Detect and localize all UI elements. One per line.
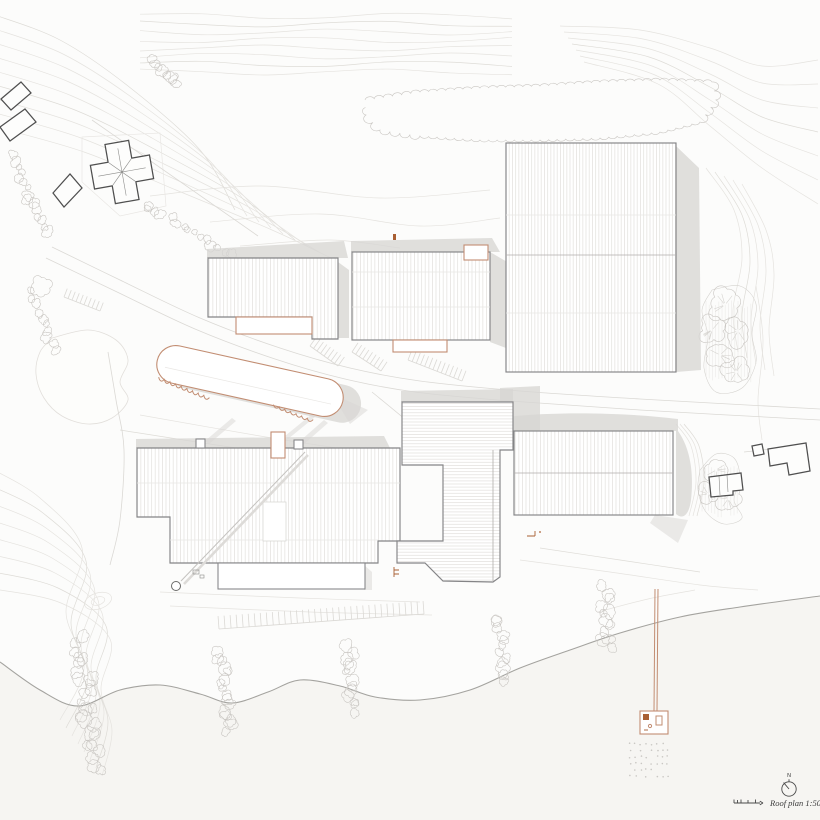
water-post-dot <box>630 750 632 752</box>
parking-c-tick <box>458 369 462 379</box>
parking-a-tick <box>328 350 334 359</box>
parking-south-tick <box>375 605 376 618</box>
parking-c-tick <box>437 361 441 371</box>
water-post-dot <box>645 757 647 759</box>
water-post-dot <box>667 749 669 751</box>
parking-south-tick <box>399 603 400 616</box>
parking-d-tick <box>100 303 103 311</box>
contour-line <box>140 13 512 19</box>
water-post-dot <box>639 744 641 746</box>
parking-south-tick <box>308 609 309 622</box>
parking-d-tick <box>92 300 95 308</box>
parking-south-tick <box>290 611 291 624</box>
parking-b-tick <box>363 350 369 359</box>
water-post-dot <box>656 763 658 765</box>
shore-shrubs <box>502 653 510 663</box>
shore-shrubs <box>79 688 90 699</box>
water-post-dot <box>645 768 647 770</box>
parking-c-tick <box>433 359 437 369</box>
parking-c-tick <box>462 371 466 381</box>
parking-south-tick <box>339 607 340 620</box>
existing-house-east-l <box>768 443 810 475</box>
water-post-dot <box>645 776 647 778</box>
water-post-dot <box>657 776 659 778</box>
water-post-dot <box>629 757 631 759</box>
existing-house-1 <box>1 82 31 110</box>
tree-branch <box>722 355 731 356</box>
parking-south-tick <box>296 610 297 623</box>
parking-d-tick <box>76 293 79 301</box>
water-post-dot <box>666 755 668 757</box>
stair-mark-2 <box>527 531 535 536</box>
existing-house-east-shed <box>752 444 764 456</box>
large-hall-northeast <box>506 143 676 372</box>
parking-south-tick <box>345 607 346 620</box>
platform-hut <box>643 714 649 720</box>
parking-south-tick <box>278 612 279 625</box>
parking-south-tick <box>260 613 261 626</box>
rooftop-box-1 <box>196 439 205 448</box>
parking-a-tick <box>338 357 344 366</box>
water-post-dot <box>651 744 653 746</box>
water-post-dot <box>662 776 664 778</box>
parking-d-tick <box>96 301 99 309</box>
contour-line <box>140 61 512 66</box>
parking-south-tick <box>333 608 334 621</box>
tree-branch <box>710 350 718 354</box>
north-label: N <box>787 773 791 779</box>
shadow-complex-top <box>136 436 390 448</box>
existing-houses-northwest <box>0 82 157 207</box>
parking-b-tick <box>377 359 383 368</box>
parking-d-tick <box>64 289 67 297</box>
tree-chain <box>32 202 41 214</box>
parking-south-tick <box>405 602 406 615</box>
contour-line <box>520 560 758 590</box>
parking-south-tick <box>411 602 412 615</box>
parking-a-tick <box>324 347 330 356</box>
parking-d-tick <box>72 292 75 300</box>
parking-c-tick <box>420 355 424 365</box>
parking-a-tick <box>317 342 323 351</box>
water-post-dot <box>634 743 636 745</box>
tree-chain <box>34 214 40 222</box>
water-post-dot <box>656 743 658 745</box>
shadow-center-tall-top <box>401 389 513 402</box>
tree-branch <box>726 372 734 373</box>
parking-a-tick <box>314 340 320 349</box>
tree-branch <box>700 494 707 495</box>
tree-branch <box>723 500 727 506</box>
tree-branch <box>729 325 736 330</box>
parking-south-tick <box>387 604 388 617</box>
parking-b-tick <box>374 357 380 366</box>
parking-c-tick <box>425 356 429 366</box>
parking-south-tick <box>242 614 243 627</box>
parking-south-tick <box>272 612 273 625</box>
shadow-hall-se-right <box>676 431 692 516</box>
tree-chain <box>43 327 52 336</box>
contour-line <box>140 69 512 75</box>
complex-corridor <box>263 502 286 541</box>
parking-c-tick <box>416 353 420 363</box>
canopy-oval <box>151 342 347 428</box>
contour-line <box>572 44 818 132</box>
parking-d-tick <box>84 296 87 304</box>
shore-shrubs <box>339 639 352 653</box>
hall-center-orange-notch <box>464 245 488 260</box>
tree-chain <box>25 185 31 190</box>
parking-a-tick <box>321 345 327 354</box>
contour-line <box>160 592 420 602</box>
hall-nw-orange-tab <box>236 317 312 334</box>
contour-line <box>140 21 512 27</box>
contour-line <box>540 548 700 572</box>
water-post-dot <box>657 750 659 752</box>
parking-c-tick <box>450 366 454 376</box>
water-post-dot <box>650 769 652 771</box>
canopy-outline <box>153 342 347 420</box>
rooftop-orange-box <box>271 432 285 458</box>
contour-line <box>598 590 695 612</box>
tree-chain <box>9 150 18 159</box>
plan-caption: Roof plan 1:500 <box>769 798 820 808</box>
beach <box>0 596 820 820</box>
parking-south-tick <box>417 601 418 614</box>
parking-south-tick <box>381 604 382 617</box>
hall-center-orange-tick <box>393 234 396 240</box>
contour-line <box>210 214 500 226</box>
water-post-dot <box>629 742 631 744</box>
shore-shrubs <box>217 679 225 689</box>
tree-chain <box>144 202 153 211</box>
shore-shrubs <box>605 593 615 603</box>
water-post-dot <box>630 763 632 765</box>
vegetation-band <box>362 78 720 142</box>
water-post-dot <box>641 755 643 757</box>
parking-south-tick <box>236 615 237 628</box>
parking-a-tick <box>335 355 341 364</box>
parking-south-tick <box>284 611 285 624</box>
site-plan-canvas: N Roof plan 1:500 <box>0 0 820 820</box>
bench-icon-2 <box>200 575 204 578</box>
parking-c-tick <box>454 368 458 378</box>
water-post-dot <box>666 763 668 765</box>
shore-shrubs <box>341 652 353 665</box>
tree-chain <box>44 320 50 327</box>
parking-d-tick <box>68 290 71 298</box>
contour-line <box>564 32 818 85</box>
water-post-dot <box>645 743 647 745</box>
water-post-dot <box>634 756 636 758</box>
parking-south-tick <box>351 606 352 619</box>
existing-house-east-lower-outline <box>709 473 743 497</box>
stair-mark-2-dot <box>539 531 541 533</box>
shore-shrubs <box>348 647 359 659</box>
tree-cluster-boundary <box>702 285 756 393</box>
parking-south-tick <box>254 613 255 626</box>
contour-line <box>140 37 512 42</box>
contour-line <box>560 26 818 66</box>
water-post-dot <box>662 756 664 758</box>
roof-plan-drawing: N Roof plan 1:500 <box>0 0 820 820</box>
shore-shrubs <box>497 657 509 668</box>
parking-c-tick <box>441 363 445 373</box>
rooftop-box-2 <box>294 440 303 449</box>
tree-chain <box>18 169 25 175</box>
parking-b-tick <box>381 362 387 371</box>
water-post-dot <box>651 749 653 751</box>
parking-a-tick <box>331 352 337 361</box>
tree <box>30 276 52 297</box>
contour-line <box>140 29 512 35</box>
water-post-dot <box>629 775 631 777</box>
existing-house-3 <box>53 174 82 207</box>
contour-line <box>0 56 271 228</box>
parking-c-tick <box>412 351 416 361</box>
parking-south-tick <box>315 609 316 622</box>
hall-center-orange-tab <box>393 340 447 352</box>
tree-branch <box>704 487 707 493</box>
parking-b-tick <box>356 345 362 354</box>
parking-d-tick <box>80 295 83 303</box>
parking-south-tick <box>321 609 322 622</box>
ramp-end-circle <box>172 582 181 591</box>
parking-south-tick <box>248 614 249 627</box>
existing-house-east-lower <box>709 473 743 497</box>
water-post-dot <box>640 750 642 752</box>
tree-chain <box>32 298 41 308</box>
parking-c-tick <box>445 364 449 374</box>
tree-branch <box>700 491 706 493</box>
water-post-dot <box>635 775 637 777</box>
hall-center-north <box>352 252 490 340</box>
shadow-hall-nw-right <box>338 262 349 338</box>
tree-chain <box>197 234 204 240</box>
water-post-dot <box>662 743 664 745</box>
parking-south-tick <box>230 615 231 628</box>
shore-shrubs <box>500 636 509 645</box>
parking-b-tick <box>352 343 358 352</box>
parking-b-tick <box>359 348 365 357</box>
parking-south-tick <box>266 613 267 626</box>
water-post-dot <box>641 769 643 771</box>
parking-south-tick <box>218 616 219 629</box>
parking-b-tick <box>367 352 373 361</box>
contour-line <box>170 606 432 615</box>
contour-line <box>140 53 512 59</box>
shore-shrubs <box>217 656 227 665</box>
water-post-dot <box>662 763 664 765</box>
building-center-tall <box>397 402 513 582</box>
water-post-dot <box>641 763 643 765</box>
tree-chain <box>192 229 198 235</box>
water-post-dot <box>650 763 652 765</box>
stair-mark-1 <box>394 567 399 577</box>
parking-south-tick <box>327 608 328 621</box>
water-post-dot <box>635 762 637 764</box>
parking-south-tick <box>357 606 358 619</box>
tree-chain <box>41 225 53 238</box>
shadow-hall-nw-top <box>207 241 348 258</box>
contour-line <box>140 45 512 51</box>
tree-branch <box>710 332 712 340</box>
shadow-hall-se-corner <box>650 515 688 543</box>
parking-south-tick <box>423 601 424 614</box>
shadow-large-hall <box>676 146 701 372</box>
water-post-dot <box>662 749 664 751</box>
parking-south-tick <box>224 616 225 629</box>
parking-south-tick <box>363 605 364 618</box>
clearing-blob <box>36 330 128 424</box>
complex-extension <box>218 563 365 589</box>
water-post-dot <box>667 776 669 778</box>
tree-branch <box>719 498 726 499</box>
water-post-dot <box>657 755 659 757</box>
shore-shrubs <box>604 604 616 620</box>
parking-b-tick <box>370 355 376 364</box>
parking-d-tick <box>88 298 91 306</box>
water-post-dot <box>634 769 636 771</box>
parking-south-tick <box>369 605 370 618</box>
parking-c-tick <box>429 358 433 368</box>
